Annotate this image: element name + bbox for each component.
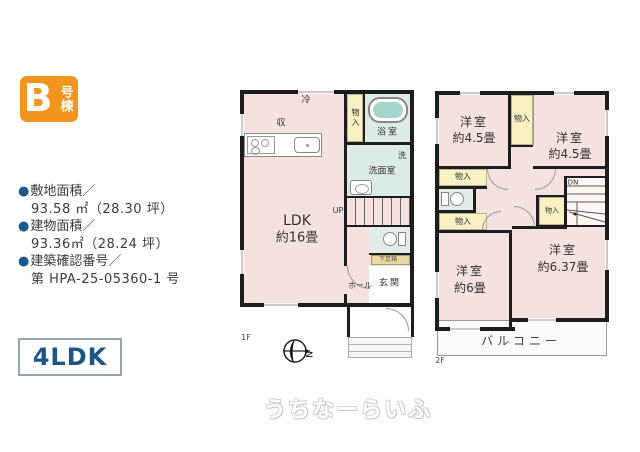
label-up: UP (333, 207, 344, 215)
info-value: 93.58 ㎡（28.30 坪） (31, 202, 233, 219)
wall (435, 210, 476, 213)
window-opening (554, 91, 574, 95)
label-closet: 物入 (455, 218, 471, 226)
window-opening (460, 91, 480, 95)
bathtub-water (373, 102, 403, 118)
label-fridge: 冷 (301, 97, 310, 106)
wall (363, 94, 365, 142)
wall (347, 142, 410, 145)
label-bathroom: 浴室 (377, 129, 399, 138)
label-ldk-size: 約16畳 (276, 232, 319, 245)
bullet-icon: ● (18, 254, 29, 269)
label-room-sw-name: 洋室 (456, 265, 484, 277)
wall (536, 225, 609, 227)
toilet-tank-1f (398, 232, 406, 246)
wall (435, 230, 512, 233)
wall (347, 225, 410, 227)
wall (347, 307, 350, 337)
window-opening (605, 240, 609, 270)
label-entrance: 玄関 (379, 280, 401, 289)
wall (511, 145, 533, 147)
floor2-label: 2F (435, 357, 445, 365)
toilet-tank-2f (441, 192, 449, 206)
label-ldk-name: LDK (283, 214, 311, 228)
drain (306, 144, 309, 147)
wall (344, 94, 347, 266)
label-hall: ホール (348, 282, 372, 290)
label-room-se-name: 洋室 (549, 244, 577, 256)
building-suffix: 号棟 (55, 85, 74, 113)
wall (347, 196, 410, 198)
info-value: 93.36㎡（28.24 坪） (31, 237, 233, 254)
window-opening (240, 250, 244, 274)
window-opening (435, 118, 439, 144)
info-label: ●建築確認番号／ (18, 254, 233, 271)
info-label: ●建物面積／ (18, 219, 233, 236)
label-closet: 物入 (351, 108, 359, 128)
wall (410, 90, 414, 307)
stairs-up (347, 198, 410, 225)
wall (369, 253, 410, 255)
label-dn: DN (568, 180, 579, 187)
kitchen-sink (294, 137, 320, 153)
building-badge: B 号棟 (20, 76, 78, 122)
plan-type-badge: 4LDK (18, 338, 122, 376)
wall (536, 195, 567, 197)
floorplan-flyer: B 号棟 ●敷地面積／ 93.58 ㎡（28.30 坪） ●建物面積／ 93.3… (0, 0, 640, 452)
label-room-ne-size: 約4.5畳 (548, 148, 591, 160)
burner (251, 147, 260, 155)
label-closet: 物入 (514, 115, 530, 123)
info-value: 第 HPA-25-05360-1 号 (31, 272, 233, 289)
wall (536, 197, 539, 225)
info-label: ●敷地面積／ (18, 184, 233, 201)
front-door-arc (386, 308, 409, 331)
label-laundry: 洗 (398, 152, 406, 160)
window-opening (264, 303, 298, 307)
building-letter: B (24, 79, 53, 117)
label-room-ne-name: 洋室 (556, 132, 584, 144)
label-balcony: バルコニー (481, 335, 561, 347)
wall (411, 307, 414, 337)
floor1-label: 1F (241, 334, 251, 342)
toilet-bowl-2f (450, 192, 464, 206)
burner (251, 139, 259, 147)
compass-north-letter: N (303, 351, 313, 358)
wall (344, 294, 347, 303)
label-closet: 物入 (455, 173, 471, 181)
wall (435, 186, 487, 189)
wall (509, 230, 512, 327)
bullet-icon: ● (18, 219, 29, 234)
wall (508, 95, 511, 168)
compass-icon: N (280, 334, 314, 368)
property-info: ●敷地面積／ 93.58 ㎡（28.30 坪） ●建物面積／ 93.36㎡（28… (18, 184, 233, 289)
window-opening (528, 318, 556, 322)
watermark: うちなーらいふ (264, 392, 432, 424)
bathtub (368, 97, 408, 123)
label-shoe-box: 下足箱 (379, 257, 397, 263)
wall (473, 189, 476, 210)
wall (509, 318, 609, 322)
stove (247, 136, 275, 154)
burner (261, 139, 269, 147)
label-closet: 物入 (545, 208, 559, 215)
washbasin (350, 180, 372, 195)
label-room-nw-name: 洋室 (460, 116, 488, 128)
window-opening (435, 272, 439, 298)
window-opening (240, 114, 244, 136)
window-opening (450, 327, 480, 331)
window-opening (298, 90, 334, 94)
label-storage: 収 (276, 120, 285, 129)
entrance-steps (348, 337, 412, 358)
label-washroom: 洗面室 (368, 168, 395, 177)
toilet-bowl-1f (383, 232, 397, 246)
label-room-sw-size: 約6畳 (454, 282, 486, 294)
label-room-nw-size: 約4.5畳 (452, 132, 495, 144)
wall (533, 95, 534, 145)
bullet-icon: ● (18, 184, 29, 199)
window-opening (605, 110, 609, 136)
wall (564, 178, 567, 225)
label-room-se-size: 約6.37畳 (538, 261, 589, 273)
washbasin-bowl (355, 184, 369, 194)
